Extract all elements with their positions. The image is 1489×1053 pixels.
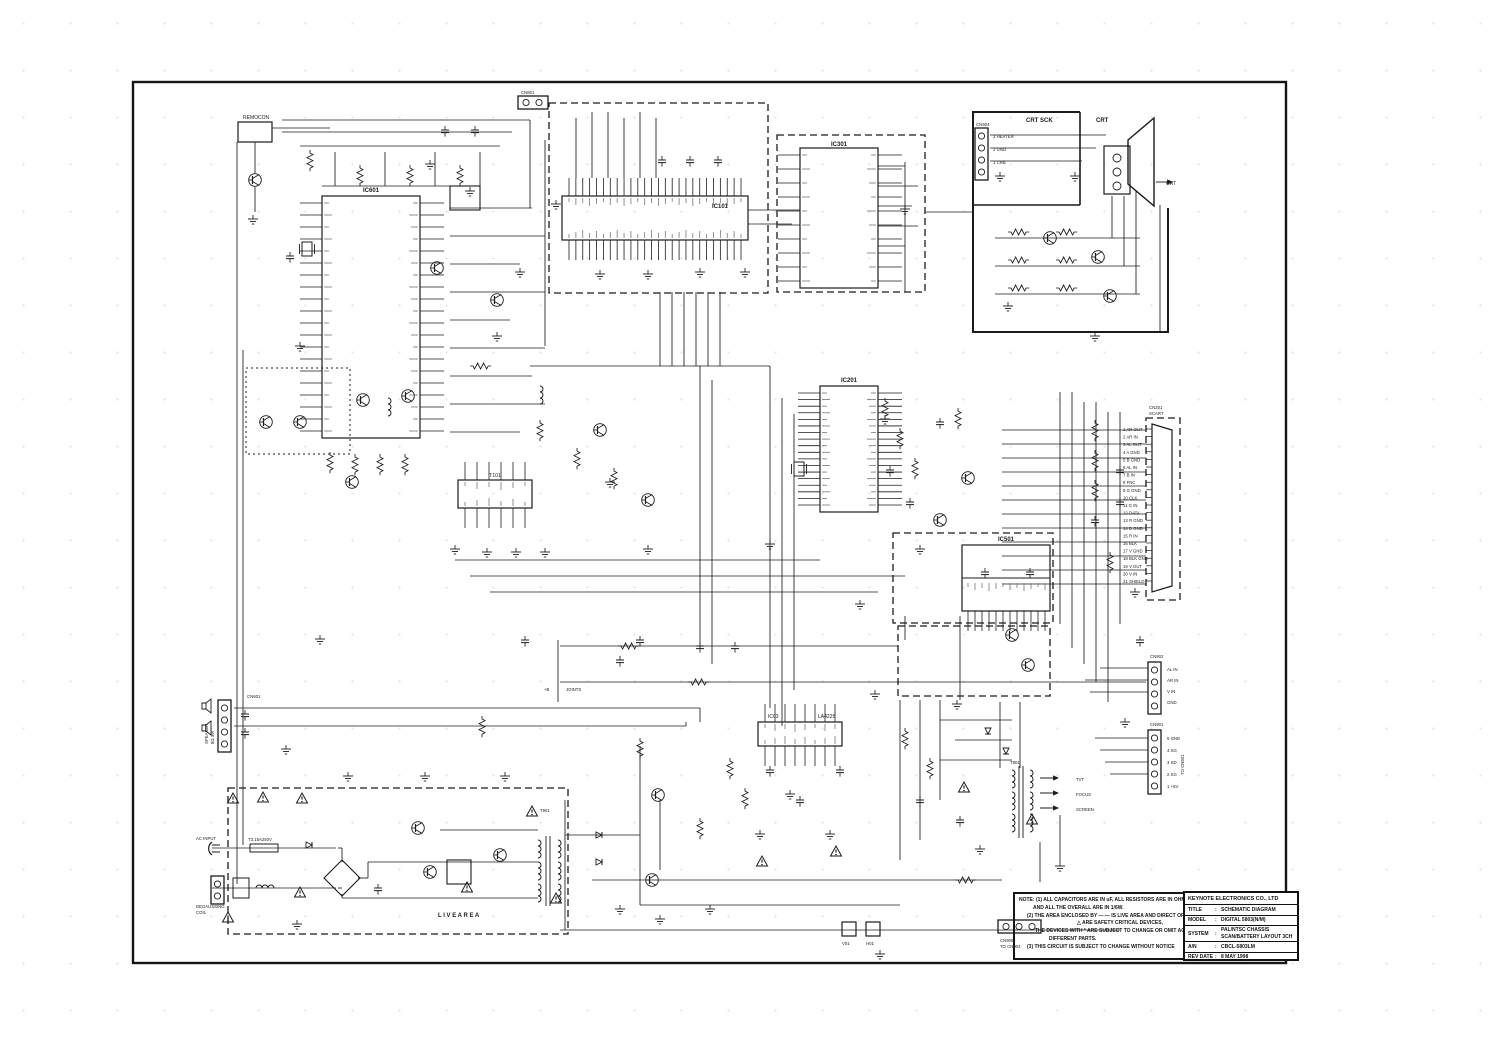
transistor	[1026, 667, 1033, 671]
cn902-pin-3: GND	[1167, 700, 1177, 705]
transistor	[1096, 252, 1103, 256]
cn904-pin2: 2 GND	[993, 147, 1006, 152]
system-row: SYSTEM : PAL/NTSC CHASSIS SCAN/BATTERY L…	[1185, 926, 1297, 942]
scart-pin-label: 16 BLK	[1123, 541, 1137, 546]
model-row-label: MODEL	[1185, 917, 1215, 923]
scart-pin-label: 15 R IN	[1123, 533, 1138, 538]
scart-pin-label: 12 DATA	[1123, 511, 1140, 516]
connector	[1148, 662, 1161, 714]
dashed-region	[1146, 418, 1180, 600]
transistor	[1010, 630, 1017, 634]
resistor	[357, 165, 363, 186]
connector-pin	[1003, 923, 1009, 929]
note-line-4: △ ARE SAFETY CRITICAL DEVICES,	[1077, 920, 1184, 928]
transistor	[350, 477, 357, 481]
scart-pin-label: 11 G IN	[1123, 503, 1138, 508]
connector-pin	[536, 99, 542, 105]
transistor	[428, 874, 435, 878]
connector	[975, 128, 988, 180]
transistor	[1096, 259, 1103, 263]
safety-triangle-icon	[963, 790, 964, 791]
cn904-label: CN904	[976, 122, 990, 127]
safety-triangle-icon	[227, 920, 228, 921]
ic03-part-label: LA4225	[818, 714, 835, 720]
connector	[842, 922, 856, 936]
connector-pin	[523, 99, 529, 105]
note-line-2: AND ALL THE OVERALL ARE IN 1/6W.	[1033, 905, 1184, 913]
cn904-pin3: 3 HEATER	[993, 134, 1014, 139]
title-block: KEYNOTE ELECTRONICS CO., LTD TITLE : SCH…	[1183, 891, 1299, 961]
title-row-value: SCHEMATIC DIAGRAM	[1221, 907, 1297, 913]
scart-pin-label: 17 V GND	[1123, 549, 1143, 554]
resistor	[307, 150, 313, 171]
resistor	[574, 448, 580, 469]
connector	[218, 700, 231, 752]
scart-pin-label: 10 CLK	[1123, 495, 1137, 500]
cn901-pin-3: 2 SG	[1167, 772, 1177, 777]
dashed-region	[898, 626, 1050, 696]
transistor	[650, 875, 657, 879]
diode	[985, 728, 991, 734]
live-area-label: L I V E A R E A	[438, 913, 480, 919]
t901-label: T901	[540, 808, 550, 813]
arrow	[1054, 791, 1059, 795]
crt-gun	[1104, 146, 1130, 194]
connector-pin	[221, 729, 227, 735]
transistor	[598, 432, 605, 436]
resistor	[1092, 480, 1098, 501]
transistor	[1026, 660, 1033, 664]
resistor	[742, 788, 748, 809]
transistor	[498, 857, 505, 861]
coil	[1012, 770, 1015, 788]
connector-pin	[221, 705, 227, 711]
cn601-label: CN601	[247, 694, 261, 699]
note-line-7: (3) THIS CIRCUIT IS SUBJECT TO CHANGE WI…	[1027, 944, 1184, 952]
ac-input-label: AC INPUT	[196, 836, 216, 841]
note-line-1: NOTE: (1) ALL CAPACITORS ARE IN uF, ALL …	[1019, 897, 1184, 905]
scart-pin-label: 9 G GND	[1123, 488, 1141, 493]
safety-triangle-icon	[299, 895, 300, 896]
speaker-icon	[206, 699, 211, 713]
transistor	[938, 515, 945, 519]
transistor	[1108, 298, 1115, 302]
cn801-label: CN801	[521, 90, 535, 95]
ic501-label: IC501	[998, 537, 1015, 543]
ic101-label: IC101	[712, 204, 729, 210]
connector-pin	[214, 881, 220, 887]
remocon-label: REMOCON	[243, 115, 270, 121]
component-box	[447, 860, 471, 884]
dashed-region	[228, 788, 568, 934]
an-row: A/N : CBCL-5803LM	[1185, 942, 1297, 953]
scart-pin-label: 20 V IN	[1123, 571, 1137, 576]
cn901-pin-1: 4 SG	[1167, 748, 1177, 753]
system-row-label: SYSTEM	[1185, 931, 1215, 937]
cn902-pin-1: AR IN	[1167, 678, 1178, 683]
cn904-pin1: 1 CRB	[993, 160, 1006, 165]
notes-box: NOTE: (1) ALL CAPACITORS ARE IN uF, ALL …	[1013, 892, 1189, 960]
scart-pin-label: 7 B IN	[1123, 473, 1135, 478]
coil	[558, 840, 561, 858]
resistor	[402, 454, 408, 475]
scart-pin-label: 18 BLK GND	[1123, 556, 1148, 561]
transistor	[350, 484, 357, 488]
resistor	[611, 468, 617, 489]
resistor	[902, 728, 908, 749]
transistor	[406, 398, 413, 402]
scart-pin-label: 4 A GND	[1123, 450, 1140, 455]
crt-section-outline	[973, 112, 1168, 332]
resistor	[479, 716, 485, 737]
connector	[1148, 730, 1161, 794]
resistor	[470, 363, 491, 369]
system-value-2: SCAN/BATTERY LAYOUT 3CH	[1221, 934, 1292, 940]
safety-triangle-icon	[761, 864, 762, 865]
crt-gun-pin	[1113, 154, 1121, 162]
safety-triangle-icon	[301, 801, 302, 802]
transistor	[253, 175, 260, 179]
crt-funnel	[1128, 118, 1154, 206]
resistor	[882, 398, 888, 419]
connector	[211, 876, 224, 904]
v01-label: V01	[842, 941, 850, 946]
note-line-5: THE DEVICES WITH * ARE SUBJECT TO CHANGE…	[1035, 928, 1184, 936]
model-row-value: DIGITAL 5803(N/M)	[1221, 917, 1297, 923]
safety-triangle-icon	[232, 801, 233, 802]
transistor	[656, 797, 663, 801]
label-layer: REMOCON IC601 IC101 IC301 IC201 IC501 IC…	[196, 90, 1185, 949]
resistor	[1008, 257, 1029, 263]
resistor	[927, 758, 933, 779]
company-name: KEYNOTE ELECTRONICS CO., LTD	[1185, 893, 1297, 905]
coil	[1012, 814, 1015, 832]
connector	[866, 922, 880, 936]
crt-arrow-label: CRT	[1166, 181, 1176, 187]
scart-connector	[1152, 424, 1172, 592]
ic301-label: IC301	[831, 142, 848, 148]
connector-pin	[1151, 703, 1157, 709]
resistor	[407, 165, 413, 186]
transistor	[938, 522, 945, 526]
connector-pin	[221, 717, 227, 723]
transistor	[656, 790, 663, 794]
ac-plug	[209, 842, 212, 855]
degauss-label-2: COIL	[196, 910, 207, 915]
cn901-dest-label: TO CN901	[1180, 754, 1185, 775]
scart-pin-label: 8 FNC	[1123, 480, 1135, 485]
cn201-label: CN201	[1149, 405, 1163, 410]
scart-pin-label: 21 SHIELD	[1123, 579, 1145, 584]
resistor	[352, 454, 358, 475]
connector-pin	[1151, 771, 1157, 777]
cn901-pin-4: 1 +5V	[1167, 784, 1178, 789]
resistor	[537, 420, 543, 441]
resistor	[1092, 450, 1098, 471]
resistor	[727, 758, 733, 779]
cn902-pin-0: AL IN	[1167, 667, 1178, 672]
component-box	[450, 186, 480, 210]
arrow	[1054, 806, 1059, 810]
cn901-label: CN901	[1150, 722, 1164, 727]
coil	[540, 386, 543, 404]
resistor	[1008, 229, 1029, 235]
coil	[1012, 792, 1015, 810]
speaker-icon	[202, 703, 206, 709]
an-row-label: A/N	[1185, 944, 1215, 950]
dashed-region	[777, 135, 925, 292]
transistor	[495, 302, 502, 306]
coil	[256, 885, 274, 888]
transistor	[298, 417, 305, 421]
revdate-row-label: REV DATE	[1185, 954, 1215, 960]
safety-triangle-icon	[262, 800, 263, 801]
connector-pin	[1151, 667, 1157, 673]
ic-body	[820, 386, 878, 512]
ic03-label: IC03	[768, 714, 779, 720]
plus-b-label: +B	[544, 687, 550, 692]
transistor	[1048, 240, 1055, 244]
revdate-row: REV DATE : 8 MAY 1998	[1185, 953, 1297, 963]
coil	[538, 884, 541, 902]
ic201-label: IC201	[841, 378, 858, 384]
crt-gun-pin	[1113, 182, 1121, 190]
bridge-rectifier	[324, 860, 360, 896]
connector-pin	[978, 169, 984, 175]
transistor	[966, 480, 973, 484]
scart-pin-label: 2 AR IN	[1123, 435, 1138, 440]
crystal	[794, 462, 804, 476]
fbt-out3: SCREEN	[1076, 807, 1094, 812]
note-line-6: DIFFERENT PARTS.	[1049, 936, 1184, 944]
connector-pin	[1151, 783, 1157, 789]
h01-label: H01	[866, 941, 874, 946]
transistor	[416, 830, 423, 834]
transistor	[435, 270, 442, 274]
cn902-pin-2: V IN	[1167, 689, 1175, 694]
fbt-label: T801	[1010, 760, 1020, 765]
ic601-label: IC601	[363, 188, 380, 194]
diode	[596, 859, 602, 865]
resistor	[457, 165, 463, 186]
fbt-out2: FOCUS	[1076, 792, 1091, 797]
coil	[538, 840, 541, 858]
connector-pin	[978, 157, 984, 163]
resistor	[377, 454, 383, 475]
scart-label: SCART	[1149, 411, 1164, 416]
transistor	[264, 424, 271, 428]
scart-pin-labels: 1 AR OUT2 AR IN3 AL OUT4 A GND5 B GND6 A…	[1123, 427, 1148, 584]
ic-body	[800, 148, 878, 288]
resistor	[1092, 420, 1098, 441]
connector-pin	[1151, 679, 1157, 685]
connector-pin	[1151, 691, 1157, 697]
crt-gun-pin	[1113, 168, 1121, 176]
transistor	[361, 402, 368, 406]
resistor	[1056, 229, 1077, 235]
speaker-text-1: SPEAKER	[204, 724, 209, 744]
resistor	[697, 818, 703, 839]
crt-socket-label: CRT SCK	[1026, 118, 1053, 124]
crt-label: CRT	[1096, 118, 1109, 124]
transistor	[264, 417, 271, 421]
cn902-label: CN902	[1150, 654, 1164, 659]
scart-pin-label: 5 B GND	[1123, 457, 1140, 462]
system-row-value: PAL/NTSC CHASSIS SCAN/BATTERY LAYOUT 3CH	[1221, 927, 1297, 940]
coil	[558, 862, 561, 880]
transistor	[966, 473, 973, 477]
resistor	[912, 458, 918, 479]
transistor	[406, 391, 413, 395]
coil	[1030, 770, 1033, 788]
dotted-region	[246, 368, 350, 454]
resistor	[1056, 285, 1077, 291]
connector-pin	[214, 893, 220, 899]
transistor	[650, 882, 657, 886]
schematic-page: REMOCON IC601 IC101 IC301 IC201 IC501 IC…	[0, 0, 1489, 1053]
transistor	[361, 395, 368, 399]
drawing-border	[133, 82, 1286, 963]
safety-triangle-icon	[835, 854, 836, 855]
transistor	[416, 823, 423, 827]
transistor	[253, 182, 260, 186]
coil	[1030, 792, 1033, 810]
fbt-out1: TVT	[1076, 777, 1084, 782]
crystal	[302, 242, 312, 256]
saw-label: T101	[489, 473, 501, 479]
connector-pin	[1151, 759, 1157, 765]
safety-triangle-icon	[531, 814, 532, 815]
note-line-3: (2) THE AREA ENCLOSED BY — — IS LIVE ARE…	[1027, 913, 1184, 921]
transistor	[1010, 637, 1017, 641]
transistor	[428, 867, 435, 871]
speaker-text-2: 8Ω 3W	[210, 730, 215, 744]
cn901-pin-2: 3 SD	[1167, 760, 1177, 765]
connector-pin	[1151, 747, 1157, 753]
resistor	[1056, 257, 1077, 263]
cn905-label: CN905	[1000, 938, 1014, 943]
revdate-row-value: 8 MAY 1998	[1221, 954, 1297, 960]
transistor	[598, 425, 605, 429]
ic-body	[758, 722, 842, 746]
arrow	[1054, 776, 1059, 780]
schematic-geometry	[202, 96, 1180, 959]
joints-label: JOINTS	[566, 687, 581, 692]
transistor	[646, 502, 653, 506]
cn901-pin-0: 5 GND	[1167, 736, 1180, 741]
degauss-label-1: DEGAUSSING	[196, 904, 225, 909]
safety-triangle-icon	[466, 890, 467, 891]
an-row-value: CBCL-5803LM	[1221, 944, 1297, 950]
coil	[538, 862, 541, 880]
scart-pin-label: 6 AL IN	[1123, 465, 1137, 470]
transistor	[495, 295, 502, 299]
transistor	[1048, 233, 1055, 237]
connector-pin	[978, 145, 984, 151]
resistor	[327, 452, 333, 473]
transistor	[498, 850, 505, 854]
transistor	[298, 424, 305, 428]
scart-pin-label: 19 V OUT	[1123, 564, 1142, 569]
scart-pin-label: 13 R GND	[1123, 518, 1143, 523]
connector-pin	[1151, 735, 1157, 741]
title-row: TITLE : SCHEMATIC DIAGRAM	[1185, 905, 1297, 916]
safety-triangle-icon	[555, 901, 556, 902]
diode	[306, 842, 312, 848]
model-row: MODEL : DIGITAL 5803(N/M)	[1185, 916, 1297, 927]
coil	[388, 398, 391, 416]
scart-pin-label: 1 AR OUT	[1123, 427, 1143, 432]
connector-pin	[221, 741, 227, 747]
transistor	[646, 495, 653, 499]
ir-receiver-box	[238, 122, 272, 142]
system-value-1: PAL/NTSC CHASSIS	[1221, 927, 1269, 933]
scart-pin-label: 14 D GND	[1123, 526, 1143, 531]
ic-body	[458, 480, 532, 508]
diode	[1003, 748, 1009, 754]
resistor	[1008, 285, 1029, 291]
title-row-label: TITLE	[1185, 907, 1215, 913]
connector-pin	[978, 133, 984, 139]
scart-pin-label: 3 AL OUT	[1123, 442, 1142, 447]
resistor	[955, 408, 961, 429]
fuse-label: T3.15A250V	[248, 837, 272, 842]
